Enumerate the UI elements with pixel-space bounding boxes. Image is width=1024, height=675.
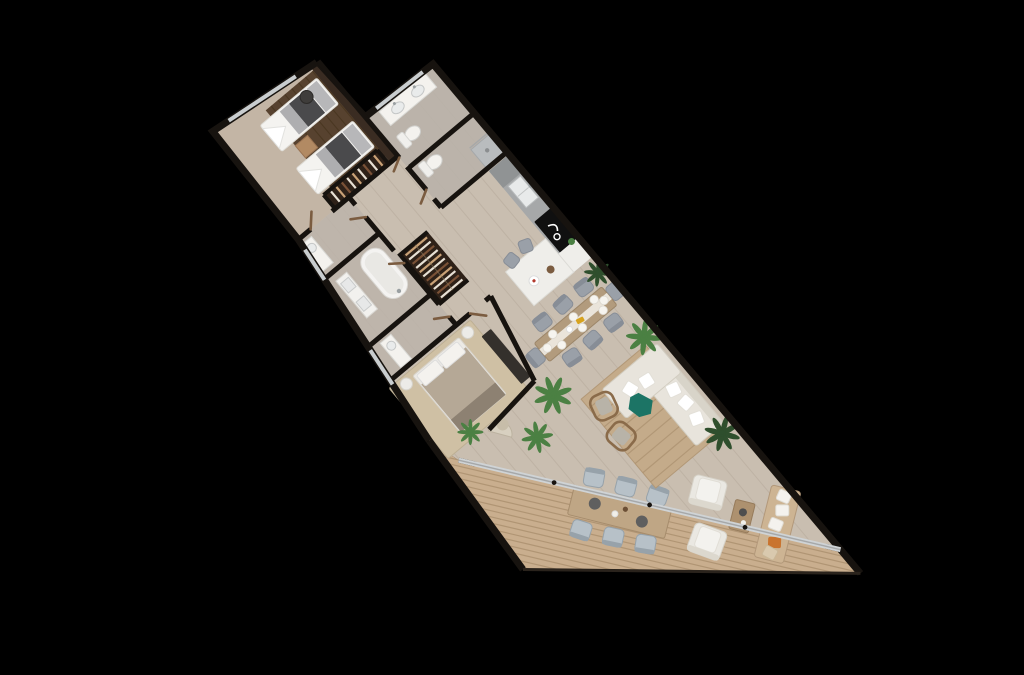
- plant-fern: [457, 419, 483, 445]
- outdoor-chair: [634, 534, 657, 555]
- floor-plan-canvas: [0, 0, 1024, 675]
- floor-plan-svg: [0, 0, 1024, 675]
- outdoor-chair: [583, 467, 606, 488]
- apartment-plan: [59, 0, 916, 675]
- outdoor-chair: [602, 526, 625, 548]
- cushion: [776, 505, 789, 516]
